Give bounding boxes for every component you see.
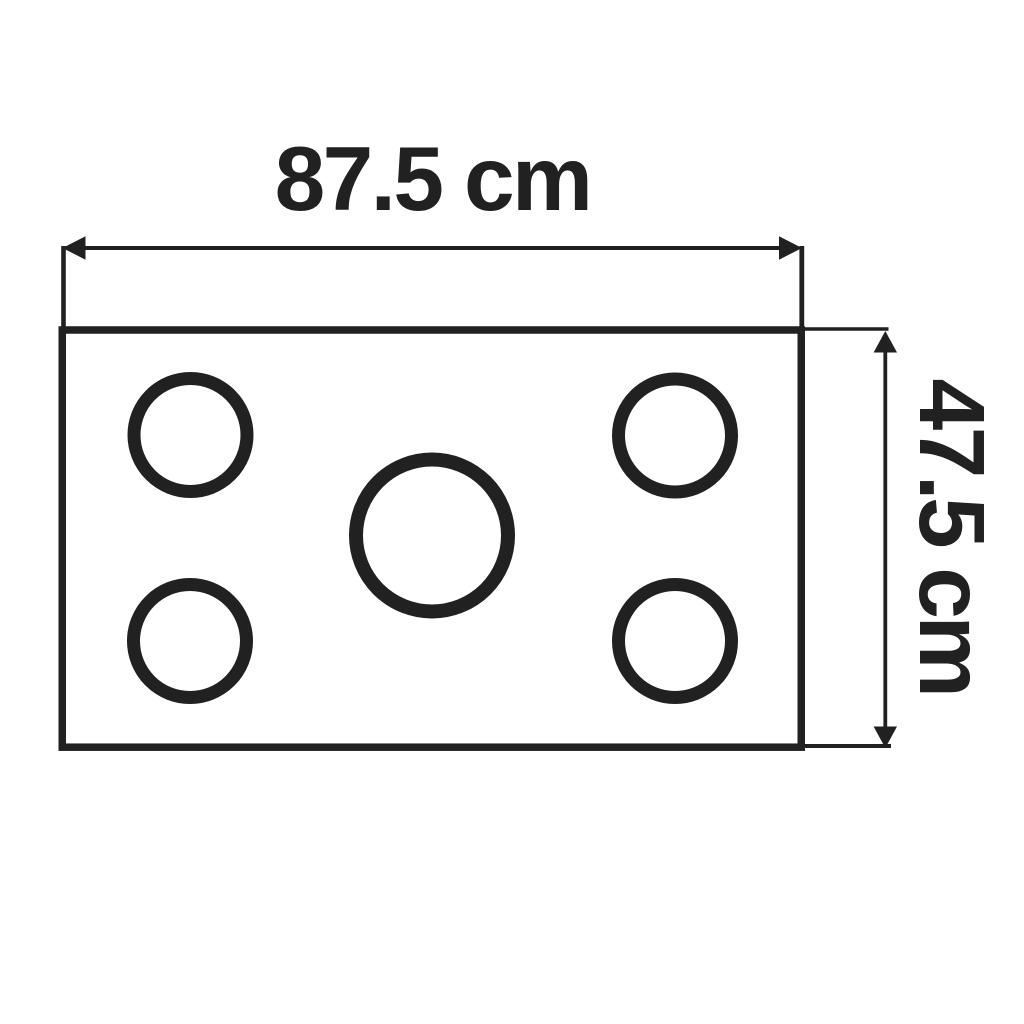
svg-text:87.5 cm: 87.5 cm — [275, 129, 591, 230]
svg-text:47.5 cm: 47.5 cm — [900, 378, 1004, 694]
